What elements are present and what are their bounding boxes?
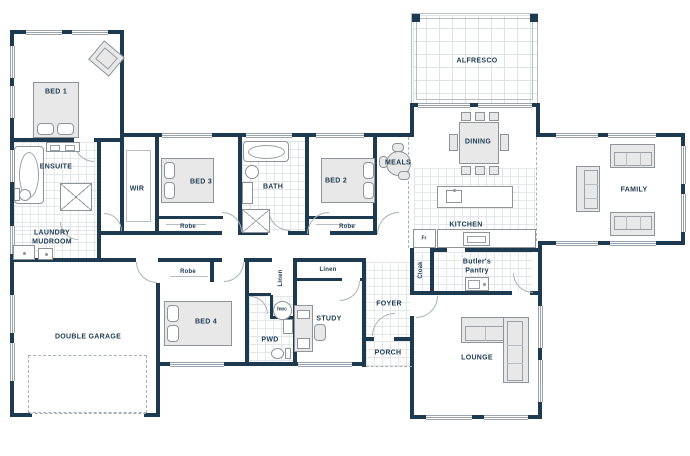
door-swing	[416, 296, 438, 318]
door-swing	[136, 262, 157, 283]
wall	[120, 30, 124, 137]
room-label-linen-study: Linen	[320, 266, 337, 274]
room-label-robe-bed4: Robe	[180, 268, 196, 276]
window	[556, 241, 598, 246]
room-label-bed4: BED 4	[195, 317, 217, 326]
office-chair-icon	[314, 324, 326, 341]
vanity-icon	[46, 142, 80, 152]
window	[298, 362, 352, 367]
window	[538, 360, 543, 402]
wall	[288, 231, 307, 235]
garage-door-recess	[28, 355, 147, 413]
window	[10, 46, 15, 78]
window	[608, 133, 656, 138]
window	[10, 343, 15, 381]
open-plan-boundary	[536, 137, 537, 241]
chair-icon	[475, 112, 485, 121]
wall	[410, 291, 512, 295]
window	[538, 306, 543, 348]
room-label-dining: DINING	[465, 137, 491, 146]
room-label-bath: BATH	[263, 182, 283, 191]
window	[484, 415, 528, 420]
sofa-icon	[610, 212, 655, 236]
sink-icon	[283, 319, 293, 334]
wall	[155, 137, 159, 235]
floor-plan: BED 1 ENSUITE LAUNDRY MUDROOM WIR BED 3 …	[0, 0, 690, 456]
corner-sofa-icon	[503, 317, 529, 383]
window	[681, 146, 686, 184]
alfresco-post	[412, 14, 420, 22]
window	[246, 133, 292, 138]
sofa-icon	[610, 144, 655, 168]
window	[426, 415, 472, 420]
room-label-butlers-pantry: Butler's Pantry	[463, 258, 491, 277]
wall	[156, 283, 160, 417]
wall	[410, 248, 414, 295]
room-label-lounge: LOUNGE	[461, 353, 493, 362]
pantry-sink-icon	[465, 277, 489, 291]
wall	[430, 248, 434, 295]
label-hwc: hwc	[277, 307, 287, 314]
room-label-robe-bed3: Robe	[180, 223, 196, 231]
room-label-family: FAMILY	[621, 185, 648, 194]
room-label-double-garage: DOUBLE GARAGE	[55, 332, 121, 341]
wall	[97, 142, 101, 262]
wall	[465, 248, 538, 252]
chair-icon	[489, 112, 499, 121]
toilet-icon	[271, 348, 284, 359]
window	[26, 30, 62, 35]
window	[316, 133, 364, 138]
sofa-icon	[576, 166, 600, 212]
room-label-alfresco: ALFRESCO	[457, 56, 498, 65]
wall	[536, 103, 540, 137]
window	[170, 362, 224, 367]
window	[681, 194, 686, 232]
sink-icon	[245, 165, 259, 179]
label-fridge: Fr	[422, 236, 427, 243]
wall	[330, 231, 375, 235]
alfresco-post	[530, 14, 538, 22]
window	[72, 30, 108, 35]
wall	[410, 316, 414, 419]
room-label-study: STUDY	[316, 314, 341, 323]
wall	[433, 248, 447, 252]
door-swing	[224, 262, 244, 282]
wall	[97, 231, 222, 235]
cooktop-icon	[463, 232, 490, 246]
toilet-icon	[19, 189, 31, 201]
chair-icon	[392, 143, 404, 152]
room-label-bed2: BED 2	[325, 176, 347, 185]
room-label-wir: WIR	[130, 184, 145, 193]
vanity-icon	[242, 182, 253, 204]
porch-edge-dashed	[366, 366, 412, 367]
room-label-cloak: Cloak	[417, 261, 425, 278]
island-sink-icon	[446, 190, 462, 203]
wall	[157, 216, 223, 219]
room-label-bed1: BED 1	[45, 87, 67, 96]
wardrobe-rail	[170, 276, 208, 277]
wall	[10, 262, 14, 417]
wall	[10, 413, 32, 417]
room-label-foyer: FOYER	[376, 299, 402, 308]
dryer-icon	[38, 248, 53, 260]
chair-icon	[489, 166, 499, 175]
window	[10, 295, 15, 333]
chair-icon	[398, 171, 410, 180]
door-swing	[377, 212, 399, 234]
open-plan-boundary	[408, 137, 409, 248]
toilet-icon	[285, 348, 291, 359]
window	[610, 241, 656, 246]
chair-icon	[475, 166, 485, 175]
room-label-robe-bed2: Robe	[339, 223, 355, 231]
wall	[120, 137, 124, 235]
room-label-meals: MEALS	[385, 158, 411, 167]
sliding-door	[418, 103, 470, 108]
bathtub-icon	[243, 141, 289, 162]
wall	[305, 137, 309, 235]
room-label-porch: PORCH	[375, 348, 402, 357]
room-label-laundry: LAUNDRY MUDROOM	[32, 229, 72, 248]
room-label-linen-hall: Linen	[277, 270, 285, 287]
wall	[293, 258, 365, 262]
window	[162, 133, 212, 138]
desk-icon	[294, 305, 313, 352]
wall	[362, 258, 366, 367]
window	[556, 133, 598, 138]
shower-icon	[242, 209, 270, 233]
wall	[245, 262, 249, 364]
wall	[410, 103, 414, 137]
sliding-door	[478, 103, 532, 108]
door-swing	[340, 281, 360, 301]
room-label-ensuite: ENSUITE	[40, 162, 72, 171]
chair-icon	[461, 166, 471, 175]
room-label-kitchen: KITCHEN	[449, 220, 482, 229]
shower-icon	[60, 183, 92, 211]
wall	[293, 278, 342, 281]
wall	[362, 337, 374, 341]
wall	[210, 262, 214, 282]
garage-door-dashed-line	[30, 413, 146, 414]
chair-icon	[461, 112, 471, 121]
room-label-pwd: PWD	[261, 335, 278, 344]
window	[10, 86, 15, 118]
room-label-bed3: BED 3	[190, 177, 212, 186]
chair-icon	[500, 134, 509, 151]
chair-icon	[449, 134, 458, 151]
